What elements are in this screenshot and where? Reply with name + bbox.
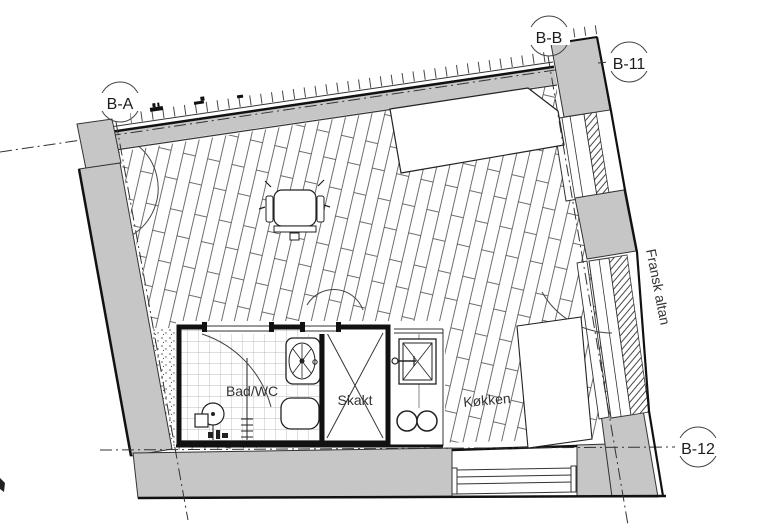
section-marker-bb-label: B-B [536, 30, 563, 47]
section-marker-b11-label: B-11 [613, 56, 646, 73]
shaft-label: Skakt [337, 392, 372, 408]
kitchen-table [517, 317, 592, 448]
section-marker-b12: B-12 [675, 427, 721, 467]
bathroom-sink [286, 338, 320, 384]
section-marker-ba-label: B-A [107, 96, 134, 113]
section-marker-ba: B-A [99, 82, 141, 122]
edge-mark [0, 478, 5, 492]
balcony-label: Fransk altan [643, 248, 673, 327]
section-marker-bb: B-B [528, 16, 570, 56]
section-marker-b11: B-11 [606, 42, 652, 82]
bottom-window [452, 446, 577, 494]
floor-plan-drawing: Bad/WC Skakt [0, 0, 758, 532]
toilet [281, 398, 319, 429]
bathroom-label: Bad/WC [226, 383, 278, 399]
wall-pier-top [551, 37, 610, 117]
kitchen-sink [392, 339, 436, 384]
bathroom: Bad/WC [179, 321, 322, 443]
floor-plan: Bad/WC Skakt [0, 0, 758, 532]
section-marker-b12-label: B-12 [681, 441, 715, 458]
